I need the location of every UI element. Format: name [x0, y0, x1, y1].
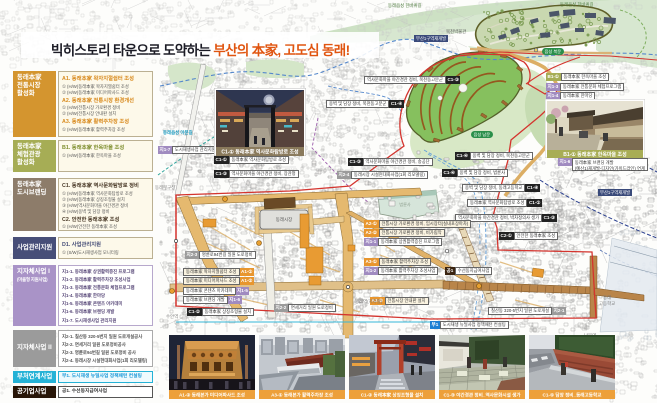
svg-text:A3-① 동래본가 활력주차장 조성: A3-① 동래본가 활력주차장 조성: [271, 392, 333, 399]
svg-text:A1-② 동래본가 미디어파사드 조성: A1-② 동래본가 미디어파사드 조성: [179, 392, 245, 399]
svg-text:C1-① 동래本家 역사문화탐방로 조성: C1-① 동래本家 역사문화탐방로 조성: [221, 149, 299, 156]
svg-text:C1-③ 야간경관 정비_역사문화시설 생가: C1-③ 야간경관 정비_역사문화시설 생가: [443, 392, 521, 399]
svg-text:C1-④ 담장 정비_동래고등학교: C1-④ 담장 정비_동래고등학교: [543, 392, 603, 399]
svg-text:동래시장: 동래시장: [276, 216, 293, 223]
svg-text:C1-② 동래本家 상징조형물 설치: C1-② 동래本家 상징조형물 설치: [361, 392, 424, 399]
svg-text:법륜사: 법륜사: [399, 201, 411, 208]
svg-text:B1-① 동래本家 한옥마을 조성: B1-① 동래本家 한옥마을 조성: [563, 151, 627, 158]
